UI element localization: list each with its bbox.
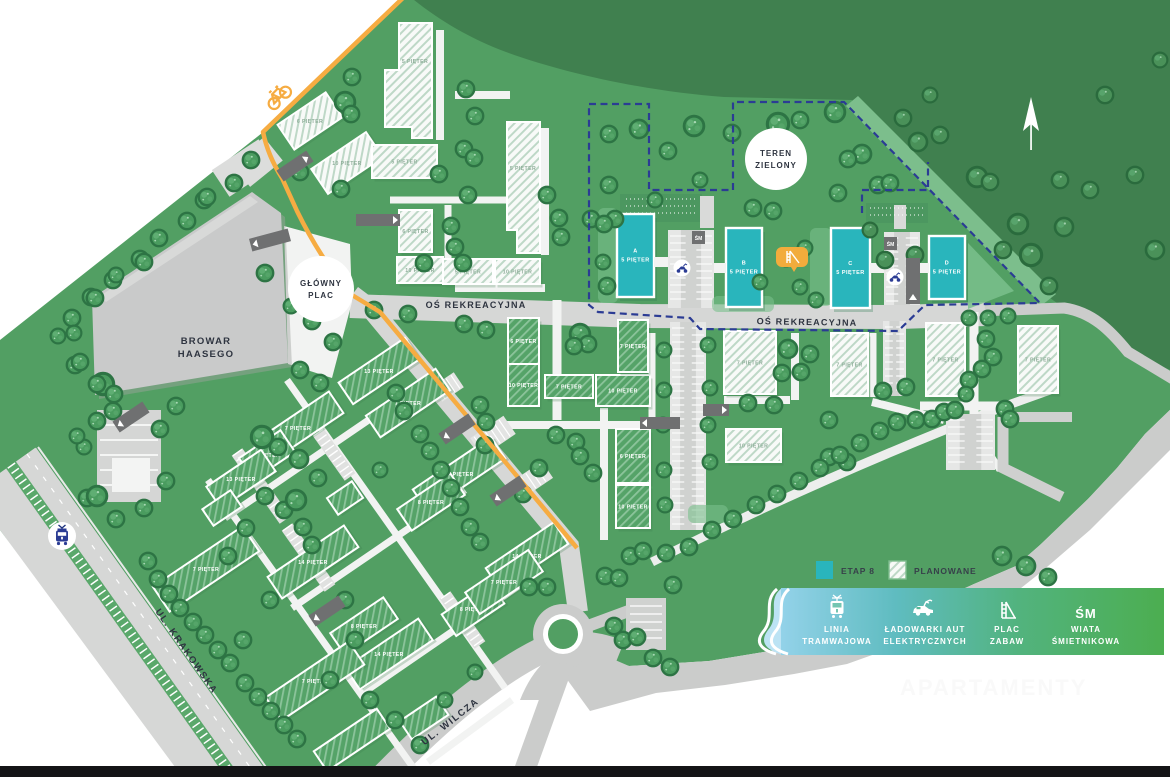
svg-text:GŁÓWNY: GŁÓWNY [300, 279, 342, 288]
svg-text:WIATA: WIATA [1071, 625, 1101, 634]
svg-text:OŚ REKREACYJNA: OŚ REKREACYJNA [426, 299, 527, 310]
svg-text:5 PIĘTER: 5 PIĘTER [933, 270, 961, 276]
svg-text:7 PIĘTER: 7 PIĘTER [556, 385, 582, 391]
svg-text:6 PIĘTER: 6 PIĘTER [297, 119, 323, 125]
svg-text:TRAMWAJOWA: TRAMWAJOWA [802, 637, 872, 646]
svg-text:5 PIĘTER: 5 PIĘTER [402, 59, 428, 65]
svg-text:8 PIĘTER: 8 PIĘTER [418, 500, 444, 506]
svg-text:B: B [742, 261, 746, 267]
svg-text:8 PIĘTER: 8 PIĘTER [351, 624, 377, 630]
svg-text:7 PIĘTER: 7 PIĘTER [620, 344, 646, 350]
svg-text:PLANOWANE: PLANOWANE [914, 566, 976, 576]
svg-text:7 PIĘTER: 7 PIĘTER [285, 426, 311, 432]
svg-text:5 PIĘTER: 5 PIĘTER [621, 258, 649, 264]
svg-text:ZIELONY: ZIELONY [755, 161, 797, 170]
svg-text:BROWAR: BROWAR [181, 336, 231, 347]
svg-text:5 PIĘTER: 5 PIĘTER [836, 270, 864, 276]
svg-text:7 PIĘTER: 7 PIĘTER [737, 361, 763, 367]
svg-text:D: D [945, 261, 949, 267]
svg-text:10 PIĘTER: 10 PIĘTER [608, 389, 638, 395]
svg-text:C: C [848, 261, 852, 267]
svg-text:HAASEGO: HAASEGO [178, 349, 234, 360]
svg-text:ŚMIETNIKOWA: ŚMIETNIKOWA [1052, 637, 1120, 646]
svg-text:PLAC: PLAC [994, 625, 1020, 634]
svg-text:APARTAMENTY: APARTAMENTY [900, 675, 1087, 700]
svg-text:ELEKTRYCZNYCH: ELEKTRYCZNYCH [883, 637, 966, 646]
svg-text:ETAP 8: ETAP 8 [841, 566, 875, 576]
svg-text:ŚM: ŚM [887, 241, 895, 248]
svg-text:10 PIĘTER: 10 PIĘTER [739, 444, 769, 450]
svg-text:10 PIĘTER: 10 PIĘTER [509, 383, 539, 389]
svg-text:7 PIĘTER: 7 PIĘTER [193, 567, 219, 573]
svg-text:13 PIĘTER: 13 PIĘTER [226, 477, 256, 483]
svg-text:ŁADOWARKI AUT: ŁADOWARKI AUT [885, 625, 966, 634]
svg-text:6 PIĘTER: 6 PIĘTER [510, 339, 536, 345]
svg-text:ŚM: ŚM [695, 235, 703, 242]
svg-text:14 PIĘTER: 14 PIĘTER [298, 560, 328, 566]
svg-text:PLAC: PLAC [308, 291, 334, 300]
svg-text:6 PIĘTER: 6 PIĘTER [620, 454, 646, 460]
svg-text:TEREN: TEREN [760, 149, 792, 158]
svg-text:13 PIĘTER: 13 PIĘTER [364, 369, 394, 375]
svg-text:10 PIĘTER: 10 PIĘTER [332, 161, 362, 167]
svg-text:14 PIĘTER: 14 PIĘTER [374, 652, 404, 658]
svg-text:5 PIĘTER: 5 PIĘTER [730, 270, 758, 276]
svg-text:6 PIĘTER: 6 PIĘTER [402, 229, 428, 235]
svg-text:LINIA: LINIA [824, 625, 850, 634]
svg-text:7 PIĘTER: 7 PIĘTER [491, 580, 517, 586]
svg-text:7 PIĘTER: 7 PIĘTER [1025, 358, 1051, 364]
svg-text:10 PIĘTER: 10 PIĘTER [618, 505, 648, 511]
svg-text:5 PIĘTER: 5 PIĘTER [391, 160, 417, 166]
svg-text:A: A [633, 249, 637, 255]
svg-text:7 PIĘTER: 7 PIĘTER [836, 363, 862, 369]
svg-text:ZABAW: ZABAW [990, 637, 1024, 646]
svg-text:10 PIĘTER: 10 PIĘTER [503, 270, 533, 276]
svg-text:7 PIĘTER: 7 PIĘTER [932, 358, 958, 364]
svg-text:5 PIĘTER: 5 PIĘTER [510, 166, 536, 172]
svg-text:OŚ REKREACYJNA: OŚ REKREACYJNA [757, 315, 858, 328]
svg-text:ŚM: ŚM [1075, 606, 1097, 621]
